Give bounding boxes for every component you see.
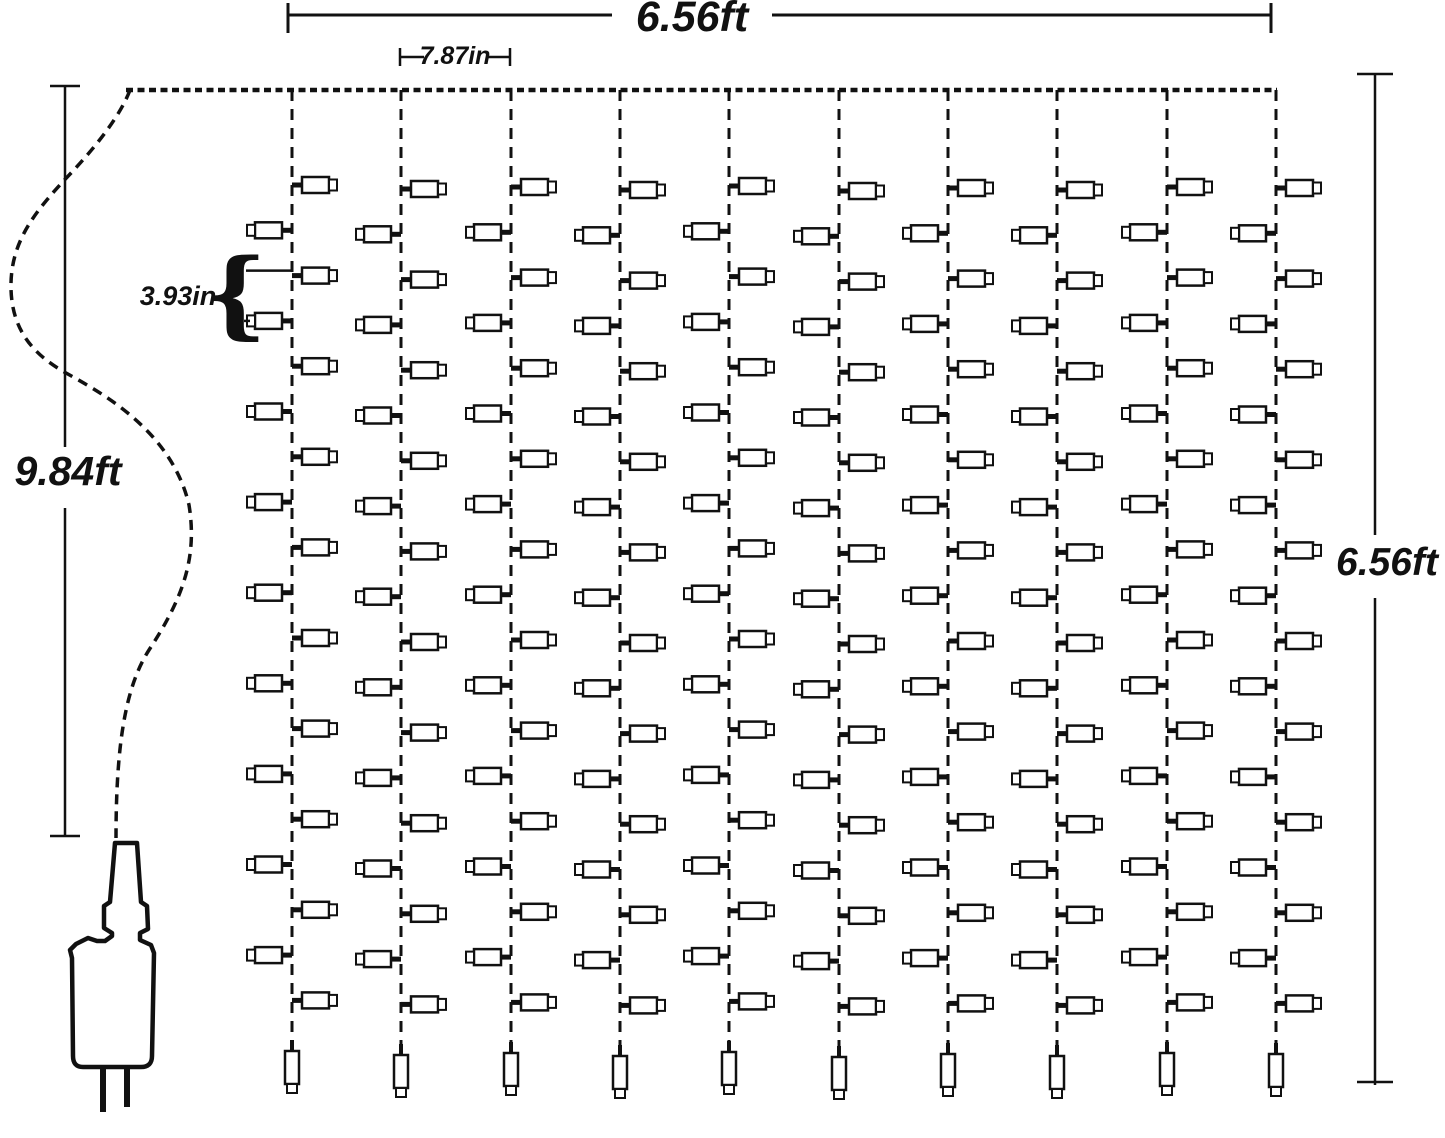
bulb-part bbox=[739, 993, 766, 1009]
bulb-part bbox=[958, 724, 985, 740]
bulb-part bbox=[247, 587, 255, 598]
light-bulb bbox=[401, 725, 446, 741]
bulb-part bbox=[657, 638, 665, 649]
bulb-part bbox=[1239, 497, 1266, 513]
bulb-part bbox=[1177, 270, 1204, 286]
end-light-body bbox=[1050, 1056, 1064, 1089]
bulb-part bbox=[1239, 407, 1266, 423]
bulb-part bbox=[876, 910, 884, 921]
bulb-part bbox=[985, 273, 993, 284]
bulb-part bbox=[766, 996, 774, 1007]
bulb-part bbox=[958, 905, 985, 921]
bulb-part bbox=[583, 409, 610, 425]
bulb-part bbox=[1177, 813, 1204, 829]
light-bulb bbox=[466, 224, 511, 240]
light-bulb bbox=[1122, 587, 1167, 603]
bulb-part bbox=[521, 360, 548, 376]
bulb-part bbox=[1130, 949, 1157, 965]
bulb-part bbox=[474, 768, 501, 784]
end-light-body bbox=[285, 1051, 299, 1084]
bulb-part bbox=[876, 820, 884, 831]
bulb-part bbox=[466, 317, 474, 328]
light-bulb bbox=[292, 358, 337, 374]
bulb-part bbox=[1204, 363, 1212, 374]
bulb-part bbox=[411, 906, 438, 922]
bulb-part bbox=[684, 407, 692, 418]
light-bulb bbox=[511, 632, 556, 648]
light-bulb bbox=[794, 863, 839, 879]
bulb-part bbox=[356, 863, 364, 874]
light-bulb bbox=[794, 500, 839, 516]
bulb-part bbox=[739, 540, 766, 556]
bulb-part bbox=[329, 904, 337, 915]
bulb-part bbox=[583, 318, 610, 334]
bulb-part bbox=[958, 542, 985, 558]
bulb-part bbox=[849, 455, 876, 471]
bulb-part bbox=[247, 768, 255, 779]
light-bulb bbox=[729, 178, 774, 194]
light-bulb bbox=[292, 721, 337, 737]
light-bulb bbox=[575, 952, 620, 968]
bulb-part bbox=[411, 815, 438, 831]
bulb-part bbox=[1204, 725, 1212, 736]
light-bulb bbox=[356, 679, 401, 695]
bulb-part bbox=[356, 682, 364, 693]
bulb-part bbox=[548, 544, 556, 555]
light-bulb bbox=[292, 539, 337, 555]
light-bulb bbox=[1012, 227, 1057, 243]
light-bulb bbox=[1122, 768, 1167, 784]
bulb-part bbox=[474, 677, 501, 693]
bulb-part bbox=[521, 270, 548, 286]
light-bulb bbox=[1231, 678, 1276, 694]
bulb-part bbox=[766, 181, 774, 192]
bulb-part bbox=[548, 635, 556, 646]
light-bulb bbox=[948, 452, 993, 468]
light-bulb bbox=[903, 588, 948, 604]
light-bulb bbox=[292, 449, 337, 465]
bulb-part bbox=[985, 907, 993, 918]
light-bulb bbox=[1057, 726, 1102, 742]
bulb-part bbox=[985, 636, 993, 647]
bulb-part bbox=[364, 408, 391, 424]
light-bulb bbox=[1057, 635, 1102, 651]
bulb-part bbox=[684, 588, 692, 599]
bulb-part bbox=[466, 408, 474, 419]
light-bulb bbox=[247, 675, 292, 691]
light-bulb bbox=[356, 498, 401, 514]
bulb-part bbox=[356, 591, 364, 602]
end-light-cap bbox=[506, 1086, 516, 1095]
bulb-part bbox=[474, 224, 501, 240]
light-bulb bbox=[575, 318, 620, 334]
bulb-part bbox=[575, 773, 583, 784]
light-bulb bbox=[839, 183, 884, 199]
bulb-part bbox=[903, 862, 911, 873]
bulb-part bbox=[1286, 361, 1313, 377]
light-bulb bbox=[903, 678, 948, 694]
bulb-part bbox=[794, 231, 802, 242]
light-bulb bbox=[1057, 997, 1102, 1013]
bulb-part bbox=[1177, 904, 1204, 920]
light-bulb bbox=[1231, 225, 1276, 241]
bulb-part bbox=[1012, 864, 1020, 875]
light-bulb bbox=[356, 589, 401, 605]
bulb-part bbox=[692, 676, 719, 692]
bulb-part bbox=[657, 456, 665, 467]
bulb-part bbox=[1177, 632, 1204, 648]
light-bulb bbox=[948, 633, 993, 649]
light-bulb bbox=[620, 907, 665, 923]
end-light-body bbox=[504, 1053, 518, 1086]
end-light-cap bbox=[1271, 1087, 1281, 1096]
light-bulb bbox=[1122, 949, 1167, 965]
bulb-part bbox=[1177, 723, 1204, 739]
bulb-part bbox=[958, 361, 985, 377]
bulb-part bbox=[766, 634, 774, 645]
bulb-part bbox=[329, 995, 337, 1006]
light-bulb bbox=[729, 812, 774, 828]
end-light-body bbox=[832, 1057, 846, 1090]
bulb-part bbox=[583, 771, 610, 787]
bulb-part bbox=[876, 367, 884, 378]
bulb-part bbox=[1177, 541, 1204, 557]
bulb-part bbox=[692, 858, 719, 874]
bulb-part bbox=[575, 411, 583, 422]
bulb-part bbox=[356, 319, 364, 330]
bulb-part bbox=[1286, 995, 1313, 1011]
light-bulb bbox=[575, 227, 620, 243]
bulb-part bbox=[575, 502, 583, 513]
bulb-part bbox=[985, 364, 993, 375]
light-bulb bbox=[1167, 541, 1212, 557]
bulb-part bbox=[911, 225, 938, 241]
bulb-part bbox=[466, 770, 474, 781]
light-bulb bbox=[1057, 182, 1102, 198]
light-bulb bbox=[511, 723, 556, 739]
bulb-part bbox=[255, 494, 282, 510]
bulb-part bbox=[1204, 816, 1212, 827]
bulb-part bbox=[364, 498, 391, 514]
bulb-part bbox=[583, 499, 610, 515]
bulb-part bbox=[876, 1001, 884, 1012]
light-bulb bbox=[356, 317, 401, 333]
light-bulb bbox=[356, 770, 401, 786]
light-bulb bbox=[356, 408, 401, 424]
light-bulb bbox=[839, 636, 884, 652]
light-bulb bbox=[729, 722, 774, 738]
bulb-part bbox=[575, 683, 583, 694]
bulb-part bbox=[1020, 227, 1047, 243]
bulb-part bbox=[1239, 316, 1266, 332]
bulb-part bbox=[1012, 773, 1020, 784]
bulb-part bbox=[255, 222, 282, 238]
bulb-part bbox=[1122, 317, 1130, 328]
bulb-part bbox=[1122, 770, 1130, 781]
light-bulb bbox=[839, 817, 884, 833]
bulb-part bbox=[1130, 859, 1157, 875]
light-bulb bbox=[948, 180, 993, 196]
bulb-part bbox=[766, 362, 774, 373]
bulb-part bbox=[903, 409, 911, 420]
light-bulb bbox=[1167, 994, 1212, 1010]
light-bulb bbox=[903, 316, 948, 332]
bulb-part bbox=[1012, 683, 1020, 694]
bulb-part bbox=[302, 630, 329, 646]
light-bulb bbox=[729, 269, 774, 285]
light-bulb bbox=[466, 406, 511, 422]
bulb-part bbox=[329, 633, 337, 644]
light-bulb bbox=[1167, 723, 1212, 739]
light-bulb bbox=[903, 769, 948, 785]
light-bulb bbox=[292, 268, 337, 284]
bulb-part bbox=[692, 314, 719, 330]
light-bulb bbox=[511, 904, 556, 920]
bulb-part bbox=[657, 185, 665, 196]
bulb-part bbox=[474, 406, 501, 422]
bulb-part bbox=[766, 724, 774, 735]
bulb-part bbox=[247, 406, 255, 417]
bulb-part bbox=[1286, 452, 1313, 468]
light-bulb bbox=[729, 903, 774, 919]
bulb-part bbox=[657, 275, 665, 286]
bulb-part bbox=[1286, 271, 1313, 287]
bulb-part bbox=[255, 675, 282, 691]
bulb-part bbox=[364, 679, 391, 695]
light-bulb bbox=[1167, 632, 1212, 648]
light-bulb bbox=[292, 992, 337, 1008]
light-bulb bbox=[948, 905, 993, 921]
bulb-part bbox=[1012, 320, 1020, 331]
bulb-part bbox=[1067, 544, 1094, 560]
bulb-part bbox=[474, 949, 501, 965]
bulb-part bbox=[1012, 592, 1020, 603]
light-bulb bbox=[401, 815, 446, 831]
bulb-part bbox=[1122, 861, 1130, 872]
bulb-part bbox=[411, 543, 438, 559]
bulb-part bbox=[1130, 587, 1157, 603]
bulb-part bbox=[1313, 907, 1321, 918]
light-bulb bbox=[620, 363, 665, 379]
bulb-part bbox=[329, 814, 337, 825]
bulb-part bbox=[1094, 1000, 1102, 1011]
bulb-part bbox=[1231, 409, 1239, 420]
bulb-part bbox=[766, 815, 774, 826]
light-bulb bbox=[292, 630, 337, 646]
bulb-part bbox=[739, 812, 766, 828]
bulb-part bbox=[1286, 633, 1313, 649]
bulb-part bbox=[255, 766, 282, 782]
bulb-part bbox=[1313, 454, 1321, 465]
bulb-part bbox=[1286, 542, 1313, 558]
light-bulb bbox=[794, 319, 839, 335]
end-light-cap bbox=[943, 1087, 953, 1096]
bulb-part bbox=[364, 951, 391, 967]
bulb-part bbox=[356, 501, 364, 512]
bulb-part bbox=[548, 182, 556, 193]
bulb-part bbox=[802, 410, 829, 426]
light-bulb bbox=[948, 724, 993, 740]
bulb-part bbox=[1067, 273, 1094, 289]
bulb-part bbox=[521, 813, 548, 829]
bulb-part bbox=[364, 226, 391, 242]
light-bulb bbox=[401, 453, 446, 469]
light-bulb bbox=[511, 270, 556, 286]
light-bulb bbox=[794, 228, 839, 244]
light-bulb bbox=[575, 590, 620, 606]
light-bulb bbox=[1012, 499, 1057, 515]
bulb-part bbox=[630, 997, 657, 1013]
end-light-cap bbox=[1162, 1086, 1172, 1095]
light-bulb bbox=[620, 454, 665, 470]
light-bulb bbox=[903, 497, 948, 513]
bulb-part bbox=[356, 410, 364, 421]
bulb-part bbox=[521, 632, 548, 648]
light-bulb bbox=[620, 273, 665, 289]
light-bulb bbox=[729, 993, 774, 1009]
bulb-part bbox=[903, 228, 911, 239]
bulb-part bbox=[1130, 677, 1157, 693]
light-bulb bbox=[903, 860, 948, 876]
bulb-part bbox=[630, 726, 657, 742]
bulb-part bbox=[583, 680, 610, 696]
bulb-part bbox=[657, 547, 665, 558]
bulb-part bbox=[255, 404, 282, 420]
bulb-part bbox=[466, 499, 474, 510]
bulb-part bbox=[1204, 272, 1212, 283]
bulb-part bbox=[876, 729, 884, 740]
light-bulb bbox=[1231, 860, 1276, 876]
light-bulb bbox=[839, 998, 884, 1014]
light-bulb bbox=[729, 359, 774, 375]
bulb-part bbox=[302, 177, 329, 193]
light-bulb bbox=[1122, 224, 1167, 240]
light-bulb bbox=[839, 727, 884, 743]
bulb-part bbox=[474, 315, 501, 331]
bulb-part bbox=[1020, 862, 1047, 878]
light-bulb bbox=[839, 908, 884, 924]
end-light-cap bbox=[396, 1088, 406, 1097]
bulb-part bbox=[583, 227, 610, 243]
bulb-part bbox=[794, 684, 802, 695]
bulb-part bbox=[364, 770, 391, 786]
light-bulb bbox=[356, 861, 401, 877]
light-bulb bbox=[1167, 360, 1212, 376]
bulb-part bbox=[548, 272, 556, 283]
bulb-part bbox=[849, 545, 876, 561]
bulb-part bbox=[329, 270, 337, 281]
bulb-part bbox=[1122, 589, 1130, 600]
bulb-part bbox=[802, 863, 829, 879]
end-light-cap bbox=[834, 1090, 844, 1099]
light-bulb bbox=[575, 409, 620, 425]
bulb-part bbox=[911, 407, 938, 423]
bulb-part bbox=[794, 321, 802, 332]
light-bulb bbox=[247, 857, 292, 873]
light-bulb bbox=[684, 405, 729, 421]
bulb-part bbox=[1020, 318, 1047, 334]
light-bulb bbox=[794, 772, 839, 788]
light-bulb bbox=[466, 677, 511, 693]
end-light-body bbox=[722, 1052, 736, 1085]
light-bulb bbox=[1057, 544, 1102, 560]
light-bulb bbox=[684, 223, 729, 239]
bulb-part bbox=[411, 181, 438, 197]
bulb-part bbox=[356, 954, 364, 965]
bulb-part bbox=[1067, 997, 1094, 1013]
bulb-part bbox=[1094, 819, 1102, 830]
bulb-part bbox=[438, 365, 446, 376]
bulb-part bbox=[692, 948, 719, 964]
bulb-part bbox=[329, 542, 337, 553]
bulb-part bbox=[1204, 453, 1212, 464]
bulb-part bbox=[1130, 768, 1157, 784]
bulb-part bbox=[1020, 680, 1047, 696]
bulb-part bbox=[630, 816, 657, 832]
bulb-part bbox=[302, 811, 329, 827]
bulb-part bbox=[575, 230, 583, 241]
bulb-part bbox=[802, 953, 829, 969]
bulb-part bbox=[302, 721, 329, 737]
light-bulb bbox=[466, 315, 511, 331]
bulb-part bbox=[849, 183, 876, 199]
bulb-part bbox=[630, 907, 657, 923]
bulb-part bbox=[657, 819, 665, 830]
bulb-part bbox=[583, 590, 610, 606]
bulb-part bbox=[1231, 318, 1239, 329]
light-bulb bbox=[466, 949, 511, 965]
bulb-part bbox=[985, 817, 993, 828]
bulb-part bbox=[849, 998, 876, 1014]
bulb-part bbox=[684, 226, 692, 237]
light-bulb bbox=[292, 811, 337, 827]
light-bulb bbox=[1057, 273, 1102, 289]
bulb-part bbox=[903, 318, 911, 329]
bulb-part bbox=[466, 952, 474, 963]
bulb-part bbox=[802, 228, 829, 244]
bulb-part bbox=[1020, 952, 1047, 968]
lead-wire-length-label: 9.84ft bbox=[6, 449, 130, 493]
bulb-part bbox=[1130, 224, 1157, 240]
bulb-part bbox=[438, 455, 446, 466]
light-bulb bbox=[620, 816, 665, 832]
light-bulb bbox=[903, 407, 948, 423]
bulb-part bbox=[876, 186, 884, 197]
bulb-part bbox=[1286, 905, 1313, 921]
bulb-part bbox=[247, 225, 255, 236]
bulb-part bbox=[521, 723, 548, 739]
bulb-part bbox=[329, 723, 337, 734]
light-bulb bbox=[839, 455, 884, 471]
bulb-part bbox=[794, 865, 802, 876]
bulb-part bbox=[1067, 907, 1094, 923]
bulb-part bbox=[1012, 411, 1020, 422]
light-bulb bbox=[401, 996, 446, 1012]
bulb-part bbox=[739, 722, 766, 738]
bulb-part bbox=[1286, 814, 1313, 830]
light-bulb bbox=[1276, 905, 1321, 921]
bulb-part bbox=[1231, 681, 1239, 692]
end-light-body bbox=[394, 1055, 408, 1088]
bulb-part bbox=[1313, 183, 1321, 194]
bulb-part bbox=[583, 862, 610, 878]
bulb-part bbox=[657, 1000, 665, 1011]
bulb-part bbox=[247, 950, 255, 961]
bulb-part bbox=[766, 271, 774, 282]
light-bulb bbox=[948, 271, 993, 287]
bulb-part bbox=[849, 908, 876, 924]
light-bulb bbox=[511, 451, 556, 467]
